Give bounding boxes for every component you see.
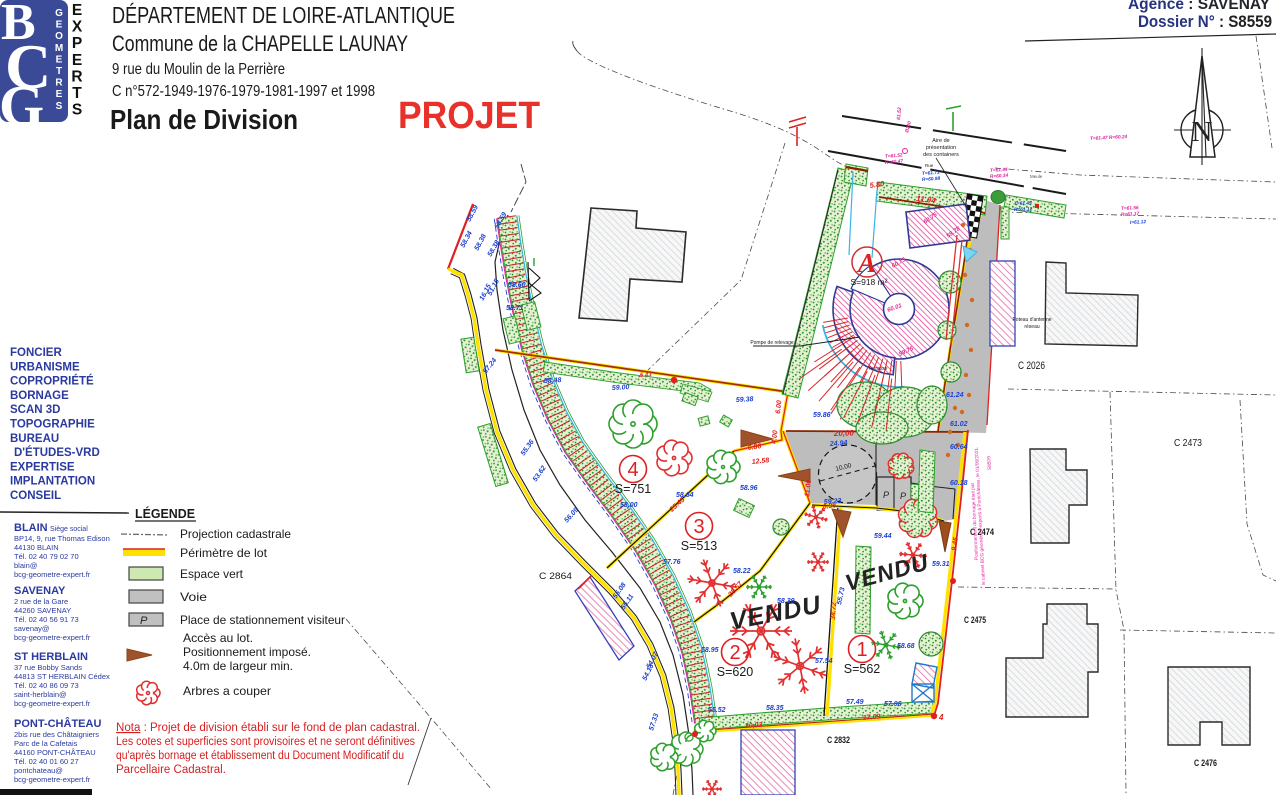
svg-text:PROJET: PROJET	[398, 95, 540, 137]
svg-text:58.39: 58.39	[777, 598, 795, 605]
svg-text:bcg-geometre-expert.fr: bcg-geometre-expert.fr	[14, 570, 91, 579]
svg-text:Pompe de relevage: Pompe de relevage	[750, 340, 794, 346]
svg-text:FONCIER: FONCIER	[10, 347, 62, 359]
svg-text:BP14, 9, rue Thomas Edison: BP14, 9, rue Thomas Edison	[14, 534, 110, 543]
svg-text:Périmètre de lot: Périmètre de lot	[180, 546, 268, 560]
svg-text:37 rue Bobby Sands: 37 rue Bobby Sands	[14, 663, 82, 672]
svg-text:P: P	[72, 35, 82, 52]
svg-text:EXPERTISE: EXPERTISE	[10, 461, 75, 473]
svg-text:44813 ST HERBLAIN Cédex: 44813 ST HERBLAIN Cédex	[14, 672, 110, 681]
svg-text:IMPLANTATION: IMPLANTATION	[10, 476, 95, 488]
svg-text:24.94: 24.94	[829, 440, 848, 448]
svg-text:S=918 m²: S=918 m²	[850, 277, 887, 287]
svg-text:I=61.12: I=61.12	[1130, 219, 1147, 226]
svg-text:Agence : SAVENAY: Agence : SAVENAY	[1128, 0, 1270, 13]
svg-text:58.35: 58.35	[766, 705, 784, 712]
svg-text:E: E	[56, 89, 63, 100]
svg-text:2 rue de la Gare: 2 rue de la Gare	[14, 597, 68, 606]
svg-text:C n°572-1949-1976-1979-1981-19: C n°572-1949-1976-1979-1981-1997 et 1998	[112, 83, 375, 100]
svg-text:Espace vert: Espace vert	[180, 567, 244, 581]
svg-text:Tél. 02 40 01 60 27: Tél. 02 40 01 60 27	[14, 757, 79, 766]
svg-text:58.96: 58.96	[740, 485, 758, 492]
svg-text:Projection cadastrale: Projection cadastrale	[180, 527, 291, 541]
svg-text:E: E	[56, 54, 63, 65]
svg-text:58.68: 58.68	[897, 643, 915, 650]
svg-text:TOPOGRAPHIE: TOPOGRAPHIE	[10, 419, 95, 431]
svg-text:S: S	[56, 101, 63, 112]
svg-text:G: G	[0, 73, 44, 138]
svg-text:R: R	[71, 68, 82, 85]
svg-text:59.00: 59.00	[612, 384, 630, 392]
svg-text:44130 BLAIN: 44130 BLAIN	[14, 543, 59, 552]
svg-text:44160 PONT-CHÂTEAU: 44160 PONT-CHÂTEAU	[14, 748, 96, 757]
svg-text:Positionnement imposé.: Positionnement imposé.	[183, 645, 311, 659]
svg-text:Tél. 02 40 56 91 73: Tél. 02 40 56 91 73	[14, 615, 79, 624]
svg-text:P: P	[140, 615, 148, 627]
svg-text:C 2473: C 2473	[1174, 437, 1202, 449]
svg-text:3: 3	[693, 516, 704, 538]
svg-text:PONT-CHÂTEAU: PONT-CHÂTEAU	[14, 717, 101, 730]
svg-text:S=513: S=513	[681, 539, 718, 553]
svg-text:20,03: 20,03	[744, 722, 763, 730]
svg-text:E: E	[56, 20, 63, 31]
svg-text:SCAN 3D: SCAN 3D	[10, 404, 60, 416]
svg-text:Tél. 02 40 79 02 70: Tél. 02 40 79 02 70	[14, 552, 79, 561]
svg-text:58.71: 58.71	[506, 305, 524, 312]
svg-text:R: R	[55, 78, 63, 89]
svg-text:4: 4	[627, 459, 638, 481]
svg-text:D'ÉTUDES-VRD: D'ÉTUDES-VRD	[14, 446, 100, 459]
svg-text:A: A	[856, 248, 876, 278]
svg-text:R=61.12: R=61.12	[1014, 206, 1033, 213]
svg-text:61.24: 61.24	[946, 392, 964, 399]
svg-text:61.52: 61.52	[896, 107, 903, 120]
svg-text:20,00: 20,00	[833, 428, 855, 438]
svg-text:61.02: 61.02	[950, 421, 968, 428]
svg-text:6.00: 6.00	[775, 400, 783, 414]
svg-text:T: T	[56, 66, 62, 77]
svg-text:Poteau d'antenne: Poteau d'antenne	[1012, 317, 1051, 323]
svg-text:Rue: Rue	[925, 163, 934, 168]
svg-text:P: P	[883, 490, 889, 500]
svg-text:réseau: réseau	[1024, 324, 1040, 330]
svg-text:58.60: 58.60	[508, 282, 526, 289]
svg-text:58.95: 58.95	[701, 647, 719, 654]
svg-text:58.64: 58.64	[676, 492, 694, 499]
svg-text:BLAIN: BLAIN	[14, 522, 48, 534]
svg-text:CONSEIL: CONSEIL	[10, 490, 61, 502]
svg-text:Tél. 02 40 86 09 73: Tél. 02 40 86 09 73	[14, 681, 79, 690]
svg-text:C 2864: C 2864	[539, 571, 572, 582]
svg-text:55.52: 55.52	[708, 707, 726, 714]
svg-text:qu'après bornage et établissem: qu'après bornage et établissement du Doc…	[116, 750, 404, 762]
svg-text:Plan de Division: Plan de Division	[110, 104, 298, 135]
svg-text:M: M	[55, 43, 63, 54]
svg-text:60.18: 60.18	[950, 480, 968, 487]
svg-text:59.38: 59.38	[736, 396, 754, 404]
svg-text:saint-herblain@: saint-herblain@	[14, 690, 67, 699]
svg-text:Voie: Voie	[180, 590, 207, 604]
svg-text:C 2475: C 2475	[964, 615, 986, 625]
svg-text:BORNAGE: BORNAGE	[10, 390, 69, 402]
svg-text:5.43: 5.43	[640, 372, 653, 379]
svg-text:Aire de: Aire de	[932, 138, 949, 144]
svg-text:4.0m de largeur min.: 4.0m de largeur min.	[183, 659, 293, 673]
svg-text:Nota : Projet de division étab: Nota : Projet de division établi sur le …	[116, 722, 420, 734]
svg-text:P: P	[900, 491, 906, 501]
svg-text:E: E	[72, 52, 82, 69]
svg-text:G: G	[55, 8, 63, 19]
svg-text:59.86: 59.86	[813, 412, 831, 419]
svg-text:Arbres a couper: Arbres a couper	[183, 684, 271, 698]
svg-text:T=61.45: T=61.45	[1014, 200, 1032, 207]
svg-text:4: 4	[938, 713, 944, 722]
svg-text:Dossier N° : S8559: Dossier N° : S8559	[1138, 13, 1272, 31]
svg-text:SAVENAY: SAVENAY	[14, 585, 66, 597]
svg-text:N: N	[1192, 116, 1213, 148]
svg-text:2bis rue des Châtaigniers: 2bis rue des Châtaigniers	[14, 730, 99, 739]
svg-text:S8509: S8509	[986, 456, 993, 470]
svg-text:C 2476: C 2476	[1194, 758, 1217, 768]
svg-text:T=61.56: T=61.56	[1121, 205, 1139, 212]
svg-text:58.00: 58.00	[620, 502, 638, 509]
svg-text:Parcellaire Cadastral.: Parcellaire Cadastral.	[116, 764, 226, 776]
svg-text:C 2026: C 2026	[1018, 360, 1045, 372]
svg-text:58.22: 58.22	[733, 568, 751, 575]
svg-text:9 rue du Moulin de la Perrière: 9 rue du Moulin de la Perrière	[112, 61, 285, 78]
svg-text:E: E	[72, 2, 82, 19]
svg-text:Parc de la Cafetais: Parc de la Cafetais	[14, 739, 78, 748]
svg-text:LÉGENDE: LÉGENDE	[135, 506, 195, 521]
svg-text:des containers: des containers	[923, 152, 959, 158]
svg-text:57.96: 57.96	[884, 701, 902, 708]
svg-text:DÉPARTEMENT DE LOIRE-ATLANTIQU: DÉPARTEMENT DE LOIRE-ATLANTIQUE	[112, 2, 455, 28]
svg-text:blain@: blain@	[14, 561, 37, 570]
svg-text:44260 SAVENAY: 44260 SAVENAY	[14, 606, 71, 615]
svg-text:S: S	[72, 102, 82, 119]
svg-text:S=562: S=562	[844, 662, 881, 676]
svg-text:C 2832: C 2832	[827, 735, 850, 745]
svg-text:60.64: 60.64	[950, 444, 968, 451]
svg-text:57.76: 57.76	[663, 559, 681, 566]
svg-text:S=620: S=620	[717, 665, 754, 679]
svg-text:bcg-geometre-expert.fr: bcg-geometre-expert.fr	[14, 699, 91, 708]
svg-text:T: T	[72, 85, 82, 102]
svg-text:59.23: 59.23	[824, 498, 842, 506]
svg-text:T=61.44: T=61.44	[990, 167, 1008, 174]
svg-text:57.49: 57.49	[846, 699, 864, 706]
svg-text:T=61.73: T=61.73	[922, 170, 940, 177]
svg-text:2: 2	[729, 642, 740, 664]
svg-text:Terrasse: Terrasse	[868, 366, 887, 372]
svg-text:bcg-geometre-expert.fr: bcg-geometre-expert.fr	[14, 775, 91, 784]
svg-text:COPROPRIÉTÉ: COPROPRIÉTÉ	[10, 375, 94, 388]
svg-text:Accès au lot.: Accès au lot.	[183, 631, 253, 645]
svg-text:Commune de la CHAPELLE LAUNAY: Commune de la CHAPELLE LAUNAY	[112, 31, 408, 56]
svg-text:présentation: présentation	[926, 145, 956, 151]
svg-text:Place de stationnement visiteu: Place de stationnement visiteur	[180, 613, 345, 627]
svg-text:Meule: Meule	[1030, 174, 1043, 179]
svg-text:57.54: 57.54	[815, 658, 833, 665]
svg-text:savenay@: savenay@	[14, 624, 50, 633]
svg-text:59.44: 59.44	[874, 533, 892, 540]
svg-text:Les cotes et superficies sont: Les cotes et superficies sont provisoire…	[116, 736, 415, 748]
svg-text:BUREAU: BUREAU	[10, 433, 59, 445]
svg-text:pontchateau@: pontchateau@	[14, 766, 63, 775]
svg-text:bcg-geometre-expert.fr: bcg-geometre-expert.fr	[14, 633, 91, 642]
svg-text:1: 1	[856, 639, 867, 661]
svg-text:59.31: 59.31	[932, 561, 950, 568]
svg-text:R=61.17: R=61.17	[1121, 211, 1140, 218]
svg-text:58.48: 58.48	[544, 377, 562, 385]
svg-text:Siège social: Siège social	[50, 526, 88, 533]
svg-text:URBANISME: URBANISME	[10, 361, 80, 373]
svg-text:O: O	[55, 31, 63, 42]
svg-text:S=751: S=751	[615, 482, 652, 496]
svg-text:ST HERBLAIN: ST HERBLAIN	[14, 651, 88, 663]
svg-text:X: X	[72, 19, 83, 36]
